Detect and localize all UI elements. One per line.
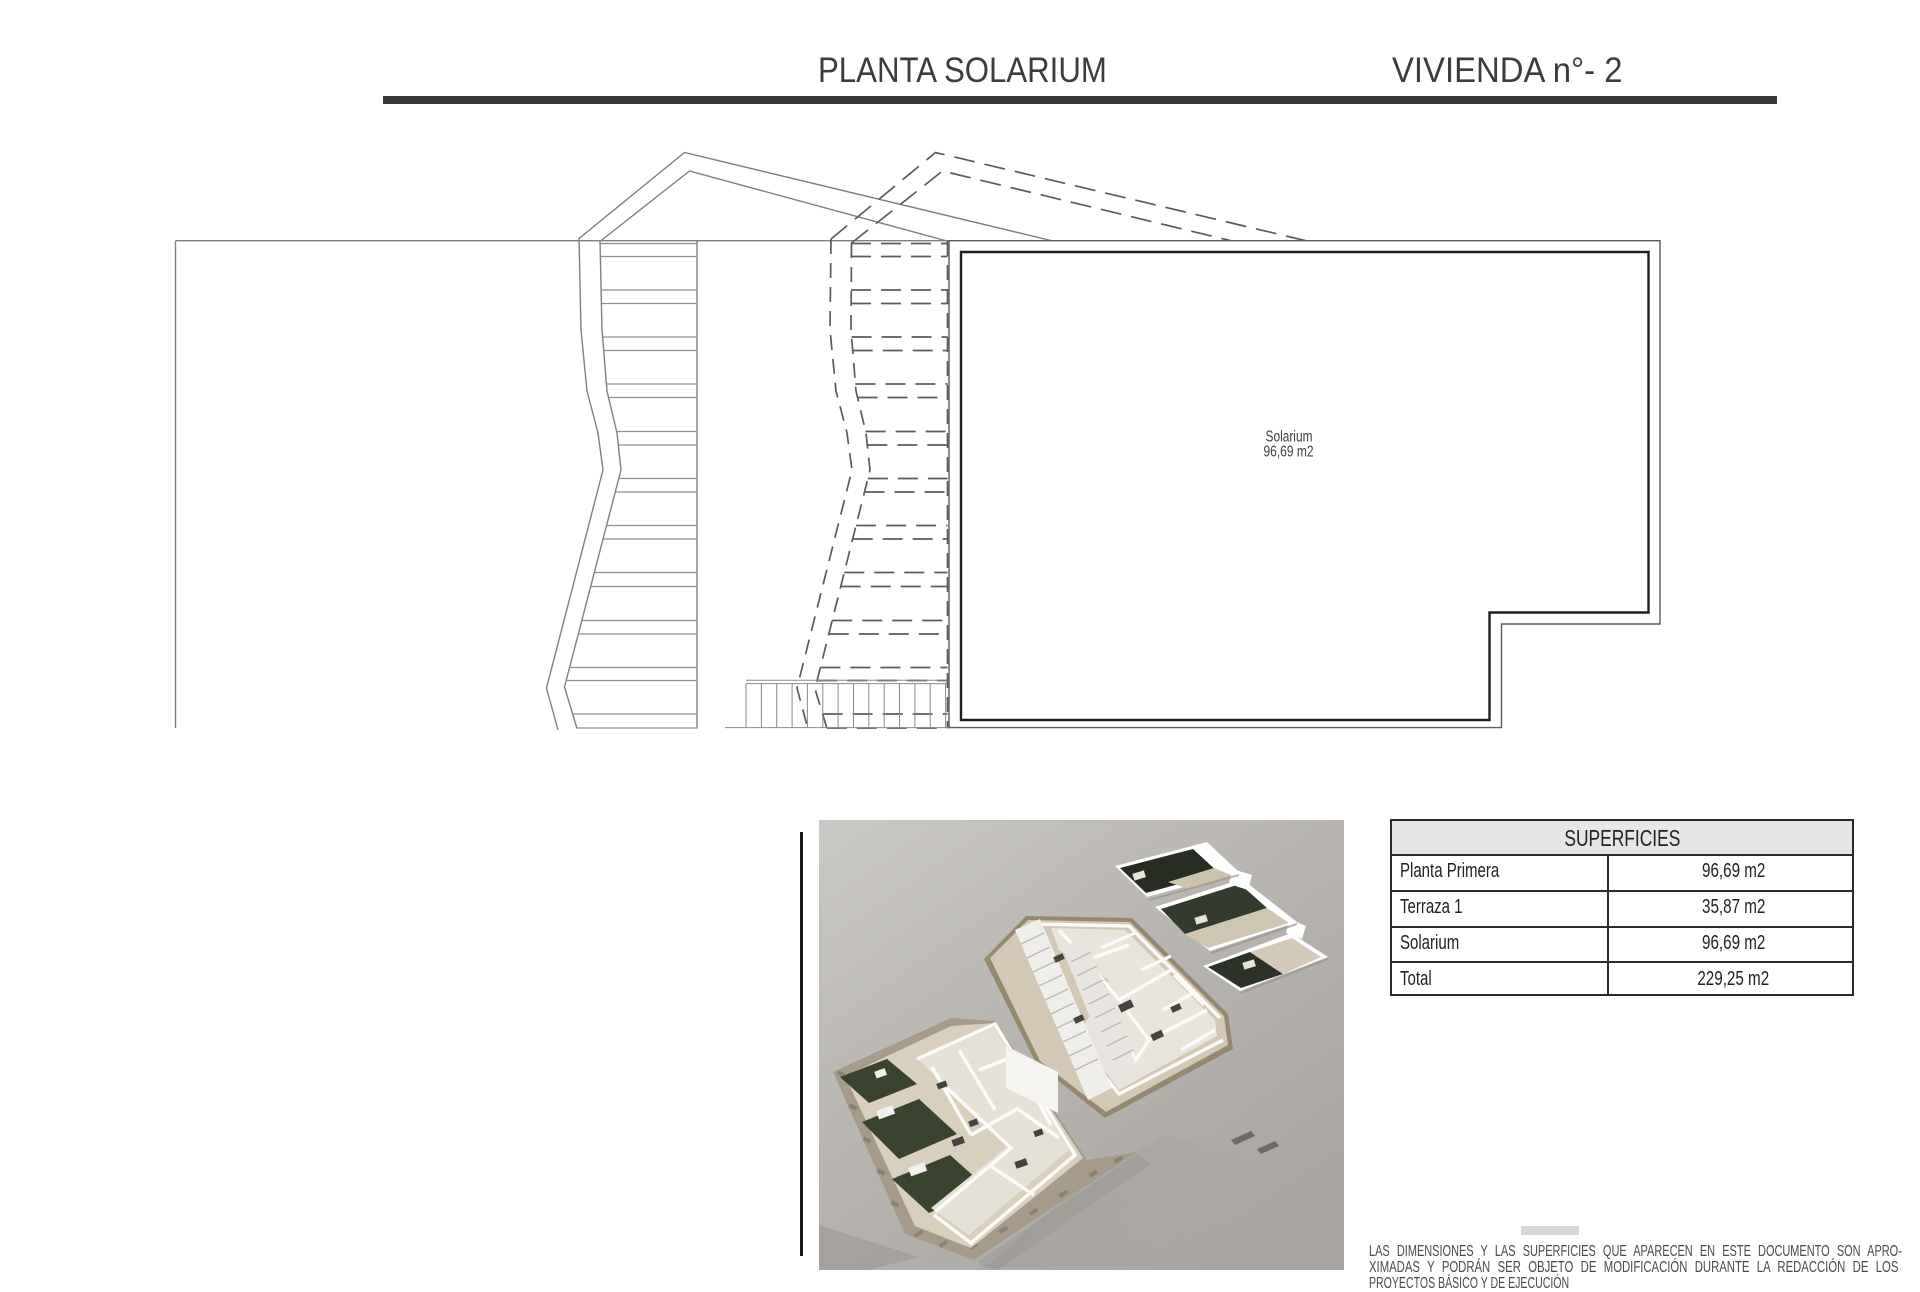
svg-text:96,69 m2: 96,69 m2 [1264,444,1314,461]
